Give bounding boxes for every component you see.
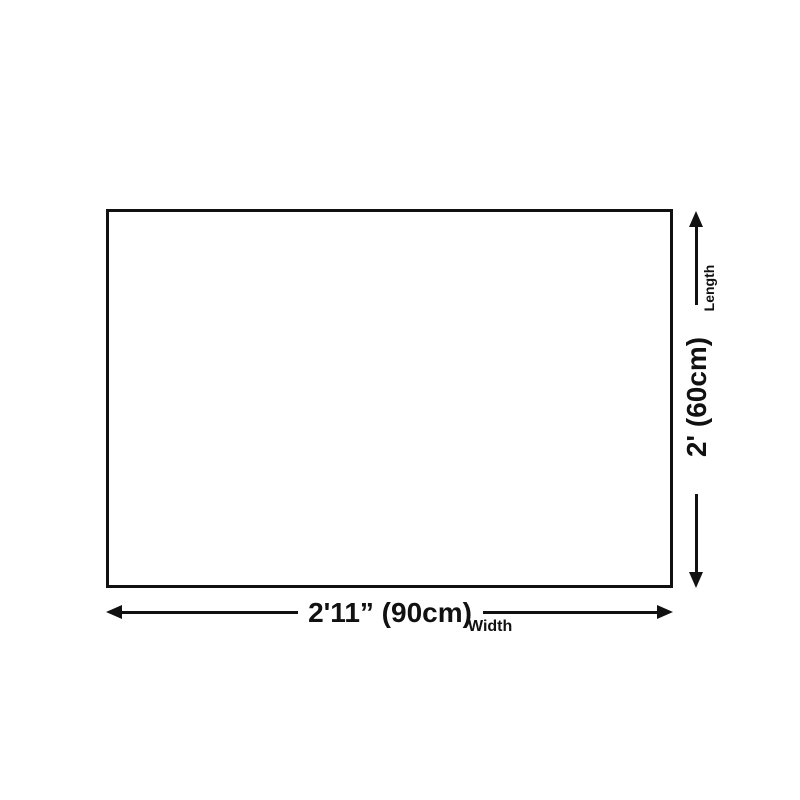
length-arrow-upper-shaft	[695, 225, 698, 305]
length-dimension-value: 2' (60cm)	[681, 337, 713, 457]
arrow-down-icon	[689, 572, 703, 588]
width-arrow-left-shaft	[120, 611, 298, 614]
diagram-canvas: Length 2' (60cm) 2'11” (90cm) Width	[0, 0, 800, 800]
length-arrow-lower-shaft	[695, 494, 698, 574]
length-dimension-name: Length	[701, 265, 717, 312]
arrow-right-icon	[657, 605, 673, 619]
width-dimension-name: Width	[468, 618, 512, 636]
width-dimension-value: 2'11” (90cm)	[308, 597, 472, 629]
width-arrow-right-shaft	[483, 611, 659, 614]
product-outline-rectangle	[106, 209, 673, 588]
